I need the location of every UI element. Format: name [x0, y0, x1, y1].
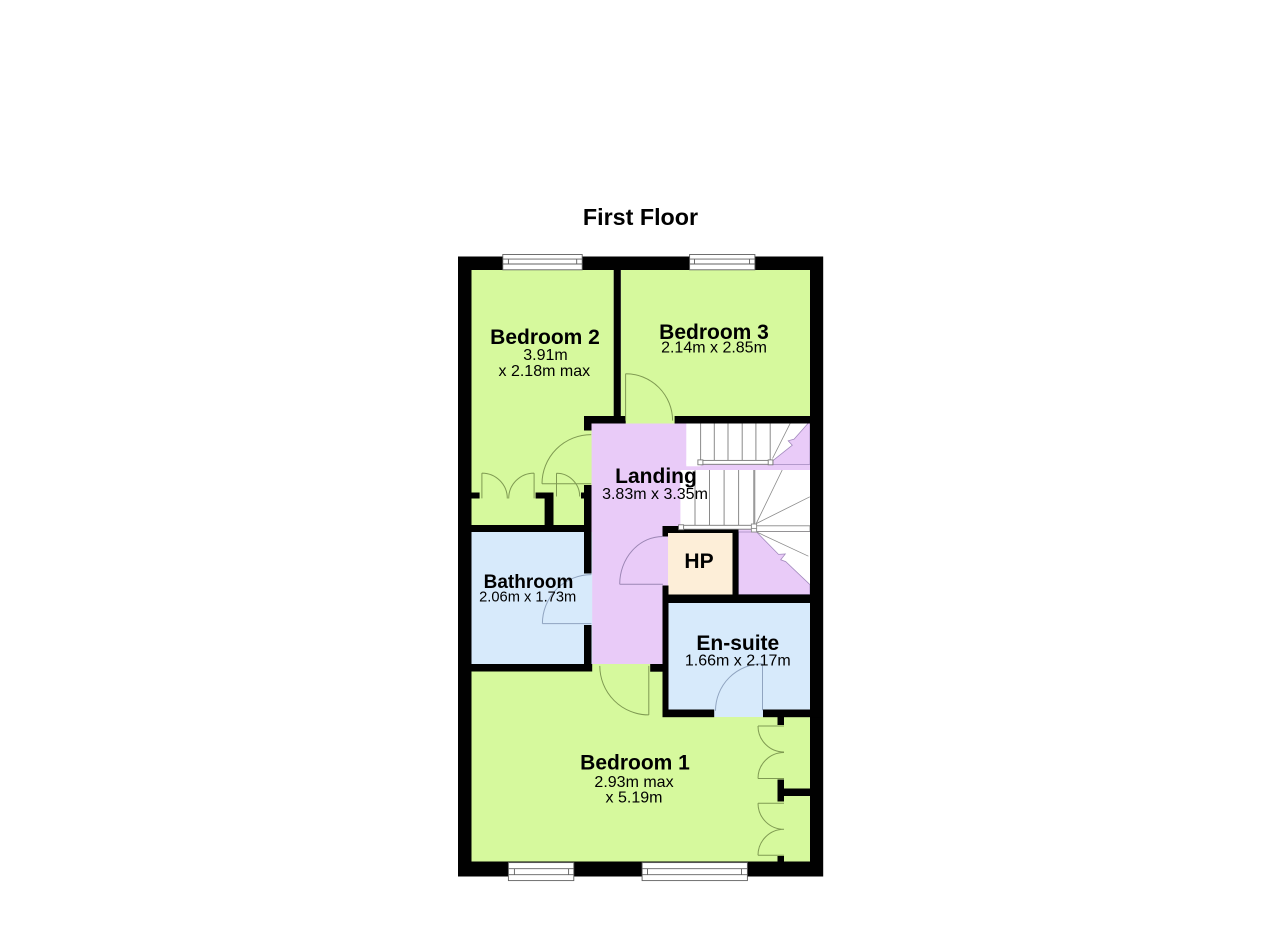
svg-text:3.83m x 3.35m: 3.83m x 3.35m [602, 486, 708, 503]
svg-text:HP: HP [684, 550, 713, 573]
svg-text:2.14m x 2.85m: 2.14m x 2.85m [661, 340, 767, 357]
svg-text:2.06m x 1.73m: 2.06m x 1.73m [479, 590, 576, 606]
svg-text:x 5.19m: x 5.19m [606, 790, 663, 807]
svg-text:x 2.18m max: x 2.18m max [499, 363, 591, 380]
svg-text:First Floor: First Floor [583, 204, 698, 230]
svg-text:Bedroom 1: Bedroom 1 [580, 752, 690, 775]
svg-text:3.91m: 3.91m [523, 347, 567, 364]
svg-text:1.66m x 2.17m: 1.66m x 2.17m [685, 653, 791, 670]
svg-text:2.93m max: 2.93m max [594, 774, 673, 791]
svg-text:Bedroom 2: Bedroom 2 [490, 326, 600, 349]
svg-text:Landing: Landing [615, 465, 697, 488]
